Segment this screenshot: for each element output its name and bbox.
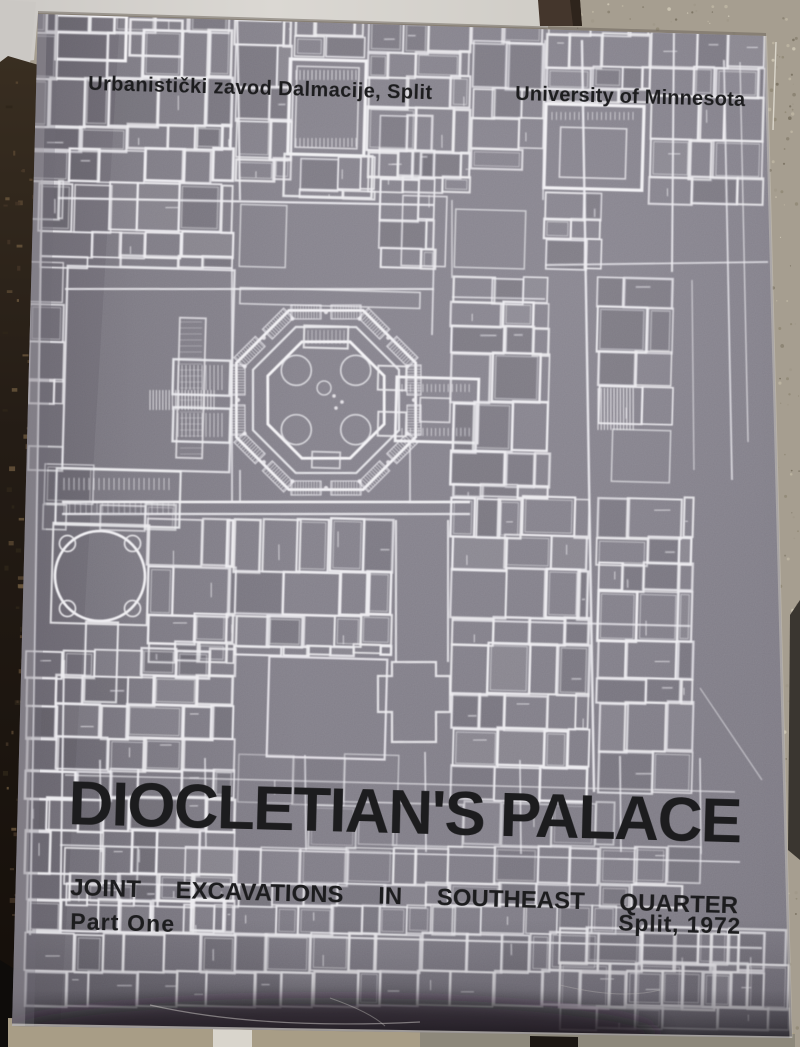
- svg-text:Split, 1972: Split, 1972: [618, 910, 741, 939]
